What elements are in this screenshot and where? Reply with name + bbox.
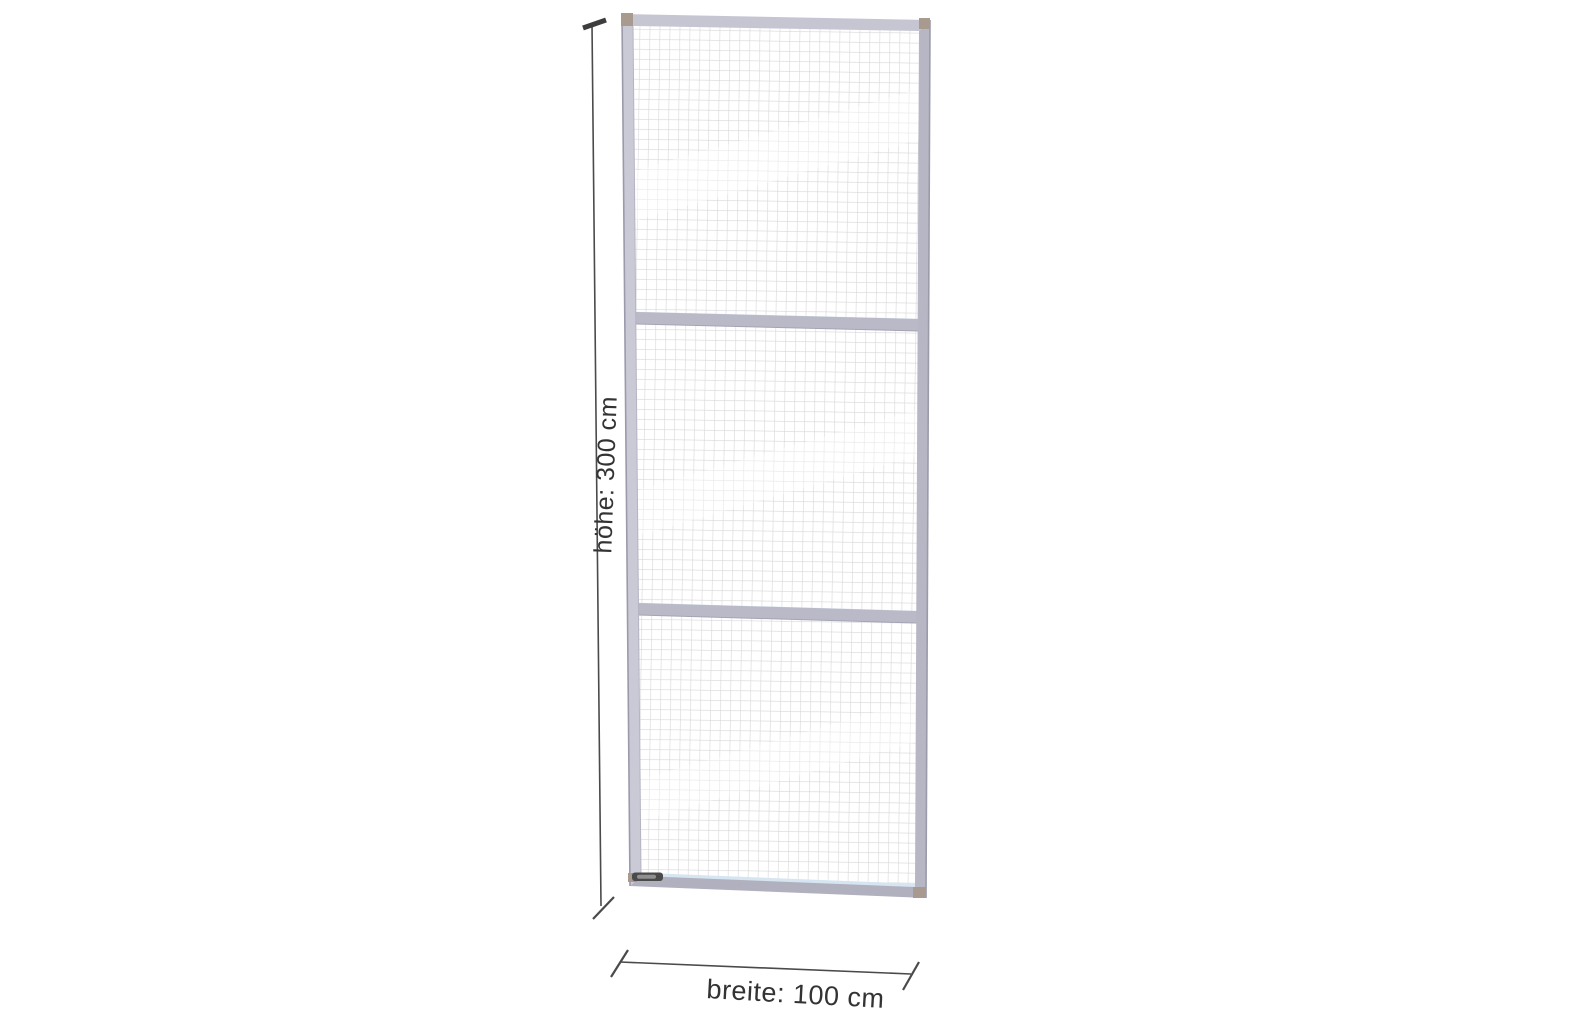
height-dimension: höhe: 300 cm [583, 20, 623, 919]
width-dimension-label: breite: 100 cm [706, 974, 885, 1014]
corner-cap-bottom-right [913, 887, 926, 898]
panel-badge [632, 873, 663, 882]
width-dimension: breite: 100 cm [611, 950, 919, 1014]
width-dimension-line [620, 962, 911, 974]
corner-cap-top-left [621, 13, 633, 26]
height-dimension-tick-top [583, 20, 606, 28]
drawing-canvas: höhe: 300 cm breite: 100 cm [0, 0, 1590, 1020]
mesh-panel [548, 0, 1292, 898]
height-dimension-label: höhe: 300 cm [589, 396, 622, 554]
width-dimension-tick-right [903, 962, 919, 990]
corner-cap-top-right [919, 18, 930, 29]
height-dimension-tick-bottom [593, 897, 614, 919]
mesh-panel-drawing: höhe: 300 cm breite: 100 cm [0, 0, 1590, 1020]
badge-inner-stripe [637, 875, 656, 879]
width-dimension-tick-left [611, 950, 628, 977]
